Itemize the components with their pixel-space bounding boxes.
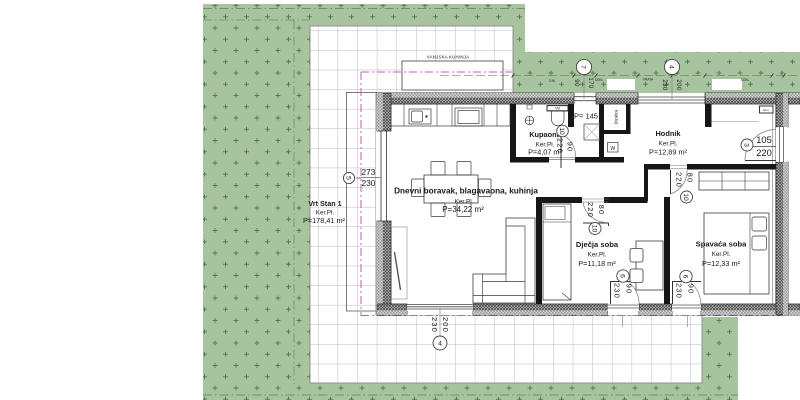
svg-text:7: 7 xyxy=(580,65,587,69)
svg-text:P=34,22 m²: P=34,22 m² xyxy=(442,205,484,214)
svg-text:P=11,18 m²: P=11,18 m² xyxy=(578,259,616,268)
svg-text:Ker.Pl.: Ker.Pl. xyxy=(712,251,731,258)
svg-text:4: 4 xyxy=(668,65,675,69)
svg-text:P=12,89 m²: P=12,89 m² xyxy=(649,148,687,157)
svg-text:Dječja soba: Dječja soba xyxy=(576,240,619,249)
svg-text:Dnevni boravak, blagavaona, ku: Dnevni boravak, blagavaona, kuhinja xyxy=(394,187,538,196)
svg-text:Ker.Pl.: Ker.Pl. xyxy=(588,252,607,259)
svg-text:200: 200 xyxy=(675,79,681,90)
svg-text:105: 105 xyxy=(756,135,772,145)
svg-text:90: 90 xyxy=(687,284,696,295)
svg-text:170: 170 xyxy=(587,77,593,88)
svg-text:230: 230 xyxy=(362,178,376,188)
svg-text:SOKL: SOKL xyxy=(741,78,750,82)
svg-text:VRATA: VRATA xyxy=(643,78,654,82)
svg-text:0-90: 0-90 xyxy=(549,79,556,83)
svg-text:Spavaća soba: Spavaća soba xyxy=(696,240,747,249)
svg-text:VANJSKA KUHINJA: VANJSKA KUHINJA xyxy=(427,55,469,60)
svg-text:80: 80 xyxy=(597,205,606,216)
svg-text:Vrt Stan 1: Vrt Stan 1 xyxy=(308,199,341,208)
svg-text:Hodnik: Hodnik xyxy=(655,129,681,138)
svg-text:10: 10 xyxy=(558,127,565,135)
svg-text:SOKL: SOKL xyxy=(595,78,604,82)
svg-text:kom: kom xyxy=(763,108,769,112)
svg-text:230: 230 xyxy=(661,79,667,90)
svg-text:200: 200 xyxy=(441,317,450,333)
svg-text:220: 220 xyxy=(556,138,565,154)
svg-text:90: 90 xyxy=(625,284,634,295)
svg-text:90: 90 xyxy=(573,79,579,87)
svg-text:5: 5 xyxy=(345,176,352,180)
svg-text:220: 220 xyxy=(586,202,595,218)
svg-text:10: 10 xyxy=(682,193,689,201)
svg-text:P=178,41 m²: P=178,41 m² xyxy=(303,216,346,225)
svg-text:3: 3 xyxy=(743,143,750,147)
svg-text:220: 220 xyxy=(675,172,684,188)
svg-text:230: 230 xyxy=(613,283,622,299)
svg-text:90: 90 xyxy=(566,142,575,153)
svg-text:4: 4 xyxy=(438,340,442,347)
svg-text:VM: VM xyxy=(555,107,560,111)
svg-text:Dizalica: Dizalica xyxy=(614,109,619,124)
svg-text:Ker.Pl.: Ker.Pl. xyxy=(659,141,678,148)
svg-text:6: 6 xyxy=(682,275,689,279)
svg-text:80: 80 xyxy=(686,173,695,184)
svg-text:230: 230 xyxy=(430,317,439,333)
svg-text:220: 220 xyxy=(756,148,772,158)
svg-text:230: 230 xyxy=(675,283,684,299)
svg-text:P=12,33 m²: P=12,33 m² xyxy=(702,259,740,268)
svg-text:10: 10 xyxy=(591,225,598,233)
svg-text:273: 273 xyxy=(362,167,376,177)
svg-text:6: 6 xyxy=(619,274,626,278)
svg-text:W: W xyxy=(610,146,615,152)
svg-text:P= 145: P= 145 xyxy=(574,112,598,121)
